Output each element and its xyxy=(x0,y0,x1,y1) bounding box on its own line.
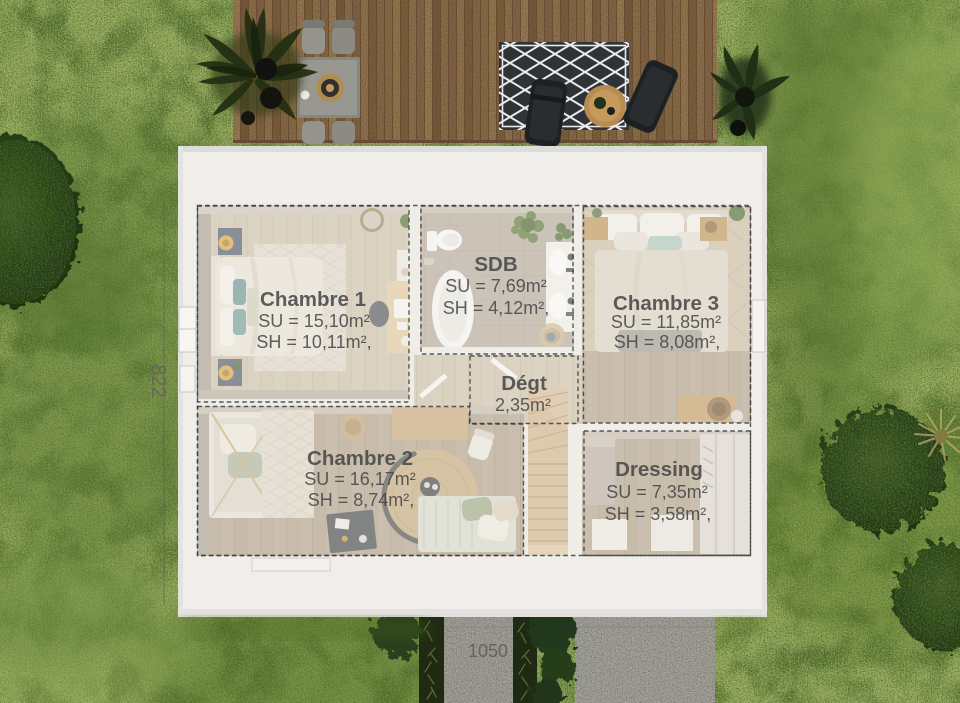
svg-text:SU = 11,85m²: SU = 11,85m² xyxy=(611,312,721,332)
svg-text:Chambre 2: Chambre 2 xyxy=(307,447,413,470)
svg-text:SH = 3,58m²,: SH = 3,58m², xyxy=(605,504,712,524)
svg-text:822: 822 xyxy=(147,364,169,397)
svg-text:2,35m²: 2,35m² xyxy=(495,395,551,415)
svg-text:SDB: SDB xyxy=(474,253,517,276)
svg-text:SH = 8,74m²,: SH = 8,74m², xyxy=(308,490,415,510)
svg-text:SU = 7,35m²: SU = 7,35m² xyxy=(606,482,708,502)
svg-text:SH = 8,08m²,: SH = 8,08m², xyxy=(614,332,721,352)
svg-text:Dressing: Dressing xyxy=(615,458,703,481)
svg-text:SU = 16,17m²: SU = 16,17m² xyxy=(304,469,416,489)
svg-text:SU = 7,69m²: SU = 7,69m² xyxy=(445,276,547,296)
svg-text:SH = 4,12m²,: SH = 4,12m², xyxy=(443,298,550,318)
svg-text:SH = 10,11m²,: SH = 10,11m², xyxy=(256,332,371,352)
svg-text:Dégt: Dégt xyxy=(501,372,547,395)
svg-text:Chambre 1: Chambre 1 xyxy=(260,288,366,311)
svg-text:1050: 1050 xyxy=(468,641,508,661)
svg-text:SU = 15,10m²: SU = 15,10m² xyxy=(258,311,370,331)
